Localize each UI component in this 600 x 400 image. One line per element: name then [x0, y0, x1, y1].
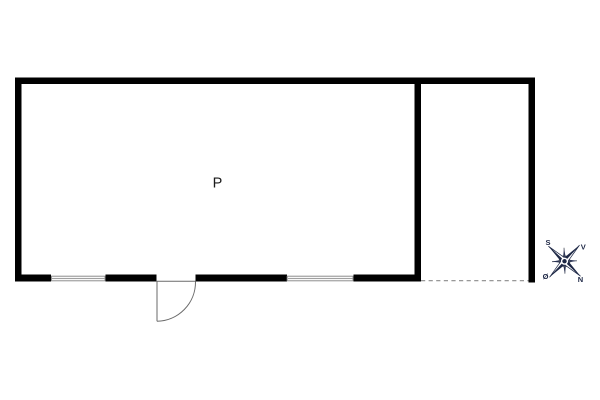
svg-text:P: P	[213, 176, 223, 192]
svg-text:N: N	[578, 275, 583, 284]
svg-text:S: S	[545, 238, 550, 247]
svg-text:V: V	[581, 242, 586, 251]
svg-text:Ø: Ø	[543, 272, 549, 281]
